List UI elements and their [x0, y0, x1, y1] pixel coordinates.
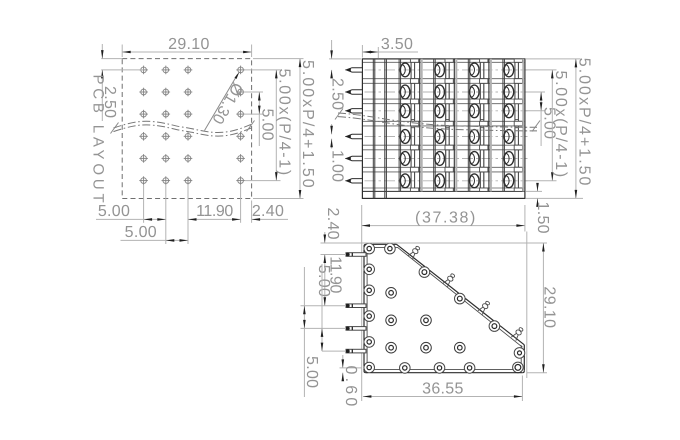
svg-text:36.55: 36.55 [422, 381, 464, 398]
svg-text:29.10: 29.10 [168, 36, 210, 53]
svg-text:(37.38): (37.38) [415, 209, 477, 226]
svg-text:11.90: 11.90 [196, 203, 233, 220]
svg-text:5.00xP/4+1.50: 5.00xP/4+1.50 [299, 60, 316, 190]
svg-text:2.40: 2.40 [324, 208, 341, 240]
svg-text:1.50: 1.50 [534, 202, 551, 234]
svg-text:5.00xP/4+1.50: 5.00xP/4+1.50 [575, 58, 592, 188]
svg-text:5.00x(P/4-1): 5.00x(P/4-1) [275, 69, 292, 177]
svg-text:29.10: 29.10 [540, 286, 557, 328]
svg-text:1.00: 1.00 [328, 150, 345, 182]
svg-text:5.00: 5.00 [125, 224, 157, 241]
svg-text:5.00x(P/4-1): 5.00x(P/4-1) [552, 71, 569, 179]
svg-text:5.00: 5.00 [315, 265, 332, 297]
svg-text:0.60: 0.60 [342, 366, 359, 410]
svg-text:2.40: 2.40 [252, 203, 284, 220]
svg-text:PCB LAYOUT: PCB LAYOUT [90, 75, 107, 207]
svg-text:5.00: 5.00 [303, 356, 320, 388]
svg-text:3.50: 3.50 [381, 36, 413, 53]
svg-text:5.00: 5.00 [258, 109, 275, 141]
svg-text:Ø1.30: Ø1.30 [208, 79, 246, 126]
svg-text:2.50: 2.50 [328, 78, 345, 110]
